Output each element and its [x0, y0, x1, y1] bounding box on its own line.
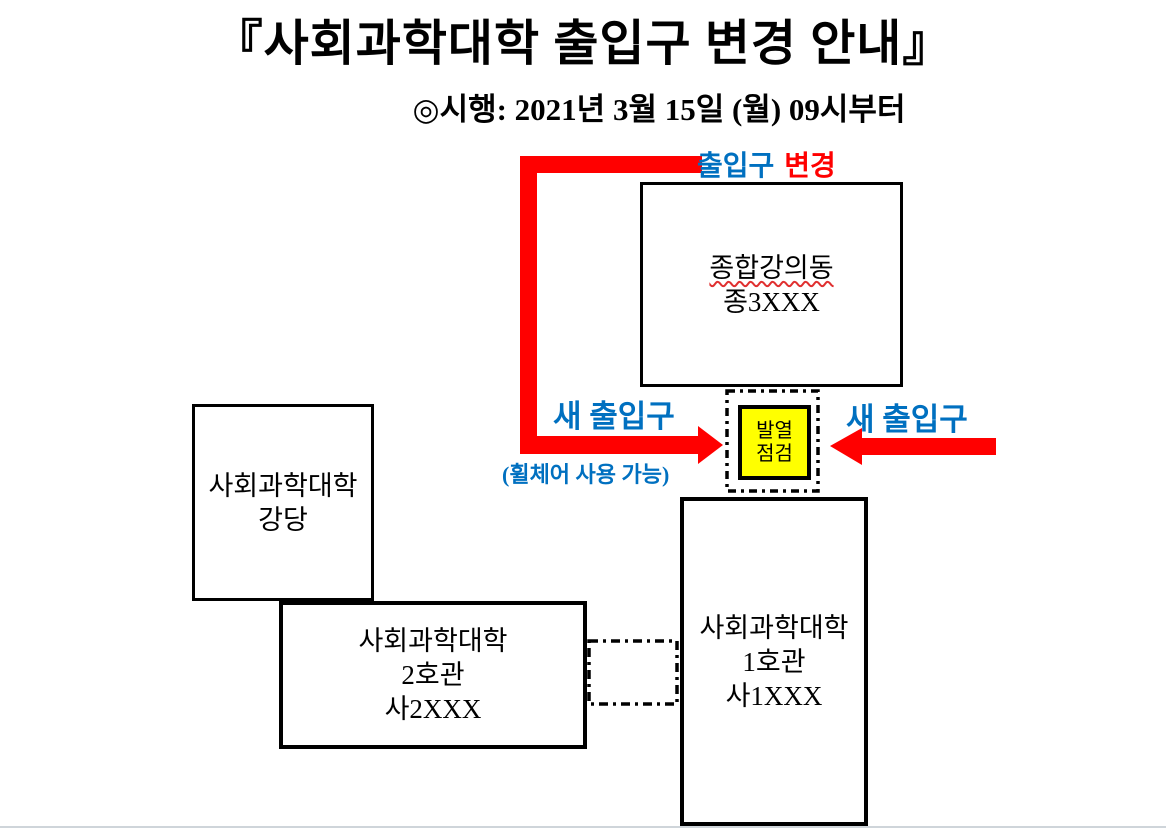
- building-1-line2: 1호관: [742, 645, 805, 679]
- checkpoint-line1: 발열: [756, 420, 793, 443]
- building-2: 사회과학대학 2호관 사2XXX: [279, 601, 587, 749]
- page-bottom-divider: [0, 826, 1166, 828]
- notice-diagram-canvas: 『사회과학대학 출입구 변경 안내』 ◎시행: 2021년 3월 15일 (월)…: [0, 0, 1166, 831]
- entrance-change-label-red: 변경: [784, 151, 836, 182]
- building-2-code: 사2XXX: [385, 692, 482, 726]
- building-lecture-hall-code: 종3XXX: [723, 285, 820, 319]
- temperature-checkpoint-box: 발열 점검: [738, 405, 811, 480]
- building-1-code: 사1XXX: [726, 679, 823, 713]
- new-entrance-right-label: 새 출입구: [846, 394, 968, 439]
- new-entrance-left-label: 새 출입구: [553, 391, 675, 436]
- building-lecture-hall-name: 종합강의동: [709, 251, 833, 285]
- wheelchair-accessible-note: (휠체어 사용 가능): [502, 457, 669, 489]
- corridor-dashed-horizontal: [589, 641, 677, 704]
- building-auditorium-line2: 강당: [258, 503, 308, 537]
- building-auditorium-line1: 사회과학대학: [208, 469, 357, 503]
- building-auditorium: 사회과학대학 강당: [192, 404, 374, 601]
- building-1-line1: 사회과학대학: [699, 611, 848, 645]
- checkpoint-line2: 점검: [756, 443, 793, 466]
- building-lecture-hall: 종합강의동 종3XXX: [640, 182, 903, 387]
- entrance-change-label-blue: 출입구: [697, 151, 774, 182]
- building-2-line1: 사회과학대학: [358, 624, 507, 658]
- building-2-line2: 2호관: [401, 658, 464, 692]
- entrance-change-label: 출입구변경: [697, 144, 836, 184]
- building-1: 사회과학대학 1호관 사1XXX: [680, 497, 868, 826]
